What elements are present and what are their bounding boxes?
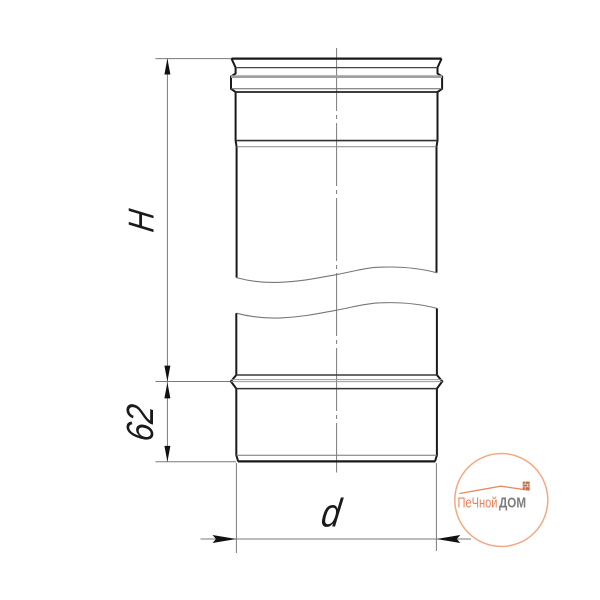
svg-text:d: d xyxy=(319,490,345,535)
svg-text:H: H xyxy=(122,207,162,234)
svg-text:62: 62 xyxy=(119,402,162,444)
svg-text:ПеЧной: ПеЧной xyxy=(458,495,498,512)
svg-text:ДОМ: ДОМ xyxy=(499,495,526,512)
